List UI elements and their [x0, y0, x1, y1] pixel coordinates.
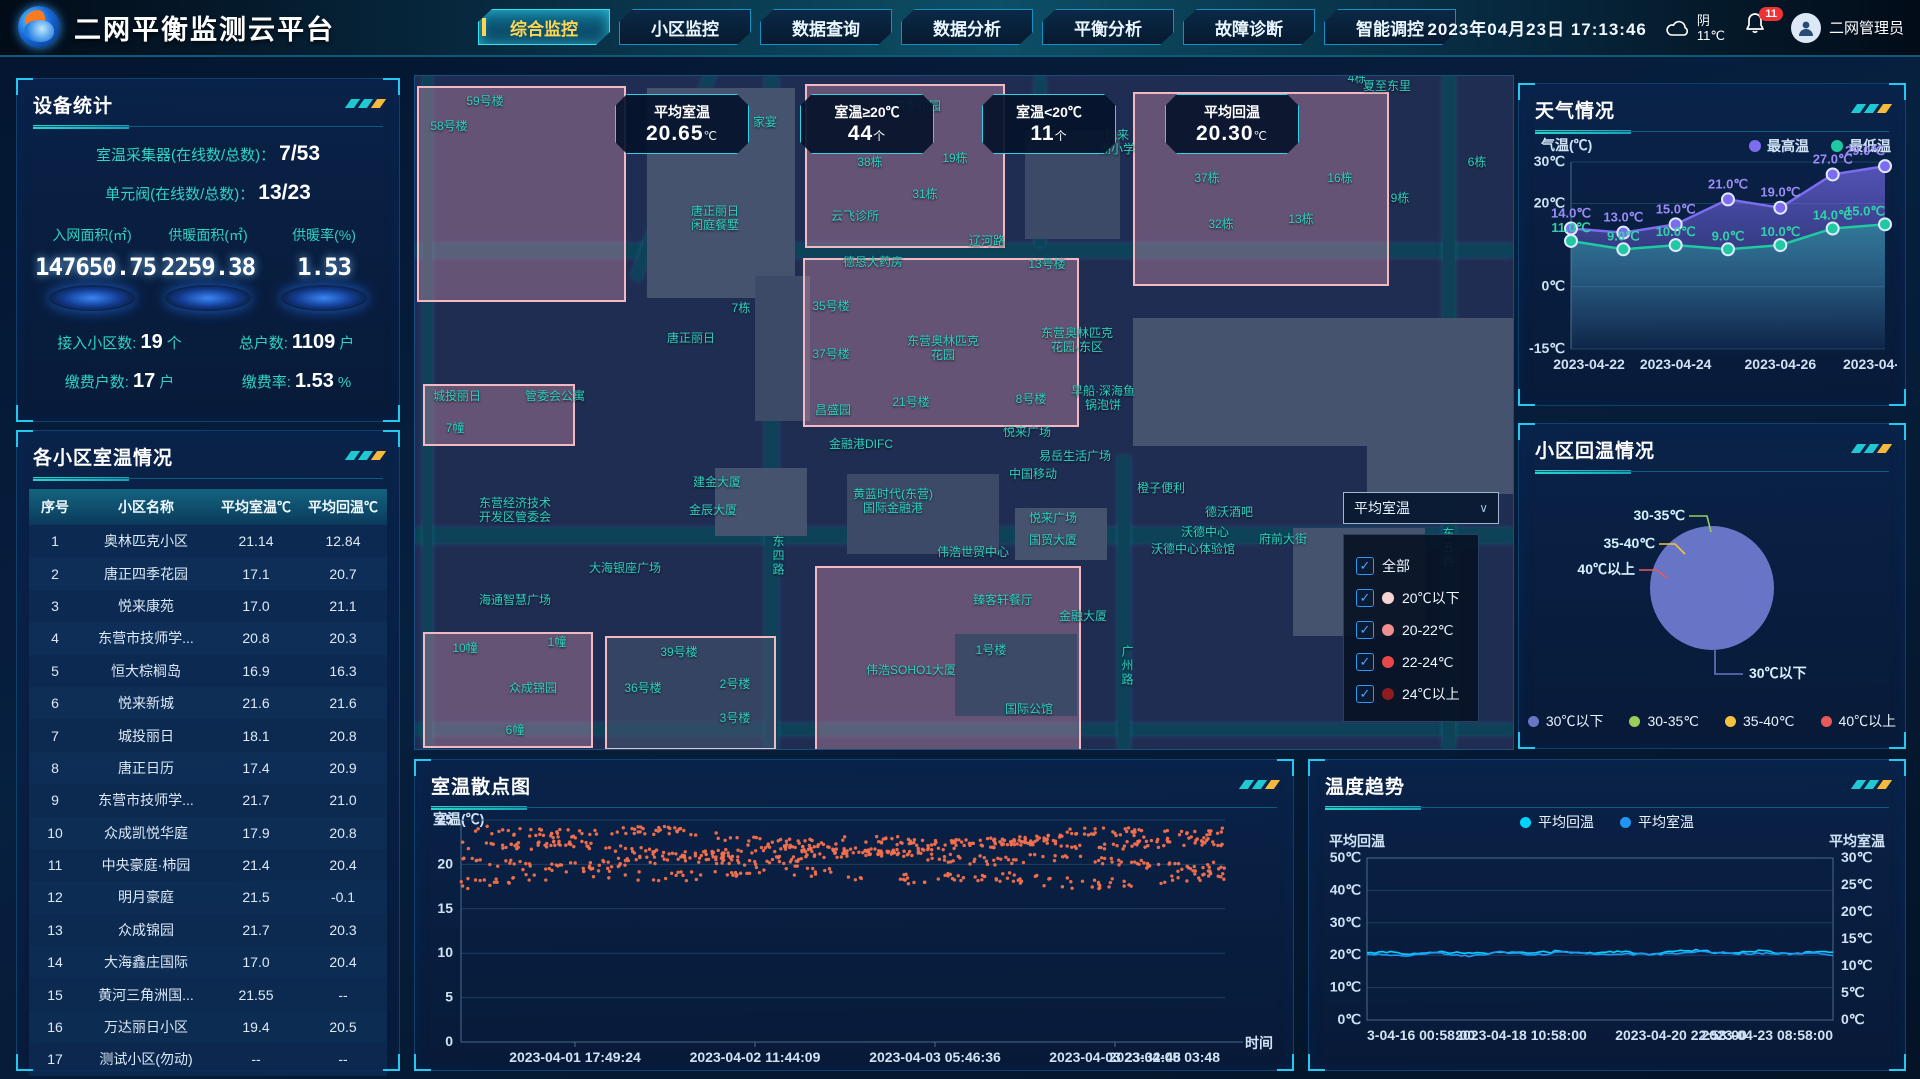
table-cell: 中央豪庭·柿园: [81, 855, 211, 875]
table-cell: --: [301, 1051, 385, 1067]
table-cell: 20.4: [301, 857, 385, 873]
map-label: 31栋: [912, 187, 937, 201]
svg-text:15: 15: [437, 900, 453, 916]
table-cell: 众成锦园: [81, 920, 211, 940]
svg-text:50℃: 50℃: [1330, 849, 1362, 865]
selected-metric: 平均室温: [1354, 498, 1410, 518]
map-label: 10幢: [452, 641, 477, 655]
nav-tab-6[interactable]: 故障诊断: [1183, 9, 1315, 45]
svg-text:30℃: 30℃: [1841, 849, 1873, 865]
panel-trend: 温度趋势 平均回温平均室温 平均回温平均室温50℃40℃30℃20℃10℃0℃3…: [1308, 759, 1906, 1071]
map-label: 昌盛园: [815, 403, 851, 417]
map-label: 伟浩世贸中心: [937, 545, 1009, 559]
trend-legend: 平均回温平均室温: [1309, 812, 1905, 832]
map-label: 8号楼: [1016, 392, 1047, 406]
legend-item: 30℃以下: [1528, 711, 1604, 731]
svg-text:0℃: 0℃: [1541, 278, 1565, 294]
table-cell: 明月豪庭: [81, 887, 211, 907]
svg-text:15.0℃: 15.0℃: [1845, 203, 1885, 218]
checkbox[interactable]: ✓: [1356, 685, 1374, 703]
table-cell: 唐正四季花园: [81, 564, 211, 584]
map-label: 国贸大厦: [1029, 533, 1077, 547]
table-cell: 东营市技师学...: [81, 628, 211, 648]
brand: 二网平衡监测云平台: [18, 6, 335, 48]
table-cell: 17.0: [211, 954, 301, 970]
panel-rewarming: 小区回温情况 30-35℃35-40℃40℃以上30℃以下 30℃以下30-35…: [1518, 423, 1906, 749]
svg-text:2023-04-: 2023-04-: [1843, 356, 1897, 372]
filter-option-label: 22-24℃: [1402, 654, 1454, 671]
table-row[interactable]: 5恒大棕榈岛16.916.3: [29, 655, 387, 687]
svg-text:平均室温: 平均室温: [1829, 833, 1885, 849]
map-label: 建金大厦: [693, 475, 741, 489]
table-row[interactable]: 1奥林匹克小区21.1412.84: [29, 525, 387, 557]
panel-title: 小区回温情况: [1535, 436, 1889, 472]
map-label: 36号楼: [624, 681, 661, 695]
nav-tab-2[interactable]: 小区监控: [619, 9, 751, 45]
table-cell: 17.4: [211, 760, 301, 776]
map-label: 海通智慧广场: [479, 593, 551, 607]
main-nav: 综合监控小区监控数据查询数据分析平衡分析故障诊断智能调控: [478, 9, 1456, 45]
map-label: 橙子便利: [1137, 481, 1185, 495]
gauge-glow-disc: [165, 285, 251, 311]
filter-option-label: 20-22℃: [1402, 622, 1454, 639]
svg-text:5: 5: [445, 989, 453, 1005]
map-label: 37号楼: [812, 347, 849, 361]
svg-text:-15℃: -15℃: [1529, 340, 1565, 356]
gauge-label: 入网面积(㎡): [35, 225, 149, 245]
temp-trend-chart: 平均回温平均室温50℃40℃30℃20℃10℃0℃30℃25℃20℃15℃10℃…: [1321, 832, 1893, 1062]
table-cell: 21.0: [301, 792, 385, 808]
map-label: 金融港DIFC: [829, 437, 893, 451]
notifications-button[interactable]: 11: [1743, 11, 1773, 45]
map-metric-select[interactable]: 平均室温∨: [1343, 492, 1499, 524]
weather-temp: 11℃: [1697, 28, 1725, 43]
map-label: 6栋: [1468, 155, 1487, 169]
map-label: 伟浩SOHO1大厦: [866, 663, 956, 677]
gauge: 入网面积(㎡)147650.75: [35, 225, 149, 311]
svg-text:0: 0: [445, 1033, 453, 1049]
badge-label: 室温≥20℃: [801, 102, 933, 122]
title-decoration: [348, 451, 383, 460]
svg-text:40℃: 40℃: [1330, 881, 1362, 897]
svg-text:35-40℃: 35-40℃: [1603, 535, 1655, 551]
filter-option[interactable]: ✓20-22℃: [1356, 617, 1478, 643]
checkbox[interactable]: ✓: [1356, 557, 1374, 575]
map-label: 39号楼: [660, 645, 697, 659]
map-label: 城投丽日: [433, 389, 481, 403]
map-label: 早船·深海鱼 锅泡饼: [1071, 384, 1135, 412]
map-label: 37栋: [1194, 171, 1219, 185]
svg-text:10.0℃: 10.0℃: [1760, 224, 1800, 239]
legend-item: 30-35℃: [1629, 711, 1699, 731]
table-row[interactable]: 9东营市技师学...21.721.0: [29, 784, 387, 816]
map-stat-badge: 室温≥20℃44个: [800, 94, 934, 154]
legend-dot: [1620, 817, 1631, 828]
map-building-block: [1367, 318, 1513, 494]
map-label: 7栋: [732, 301, 751, 315]
filter-option[interactable]: ✓24℃以上: [1356, 681, 1478, 707]
panel-scatter: 室温散点图 室温(℃)25201510502023-04-01 17:49:24…: [414, 759, 1294, 1071]
device-stat-line: 单元阀(在线数/总数)：13/23: [17, 181, 399, 205]
svg-text:19.0℃: 19.0℃: [1760, 185, 1800, 200]
table-col-header: 平均室温℃: [211, 497, 301, 517]
map-stat-badge: 平均室温20.65℃: [615, 94, 749, 154]
map-label: 7幢: [446, 421, 465, 435]
svg-text:2023-04-24: 2023-04-24: [1640, 356, 1712, 372]
svg-text:10.0℃: 10.0℃: [1656, 224, 1696, 239]
table-cell: 14: [29, 954, 81, 970]
avatar: [1791, 13, 1821, 43]
gauge-value: 1.53: [267, 253, 381, 281]
notification-badge: 11: [1759, 7, 1783, 21]
svg-text:气温(℃): 气温(℃): [1540, 137, 1592, 153]
map-label: 臻客轩餐厅: [973, 593, 1033, 607]
table-cell: 20.7: [301, 566, 385, 582]
title-decoration: [348, 99, 383, 108]
svg-text:14.0℃: 14.0℃: [1551, 205, 1591, 220]
map-label: 唐正丽日 闲庭餐墅: [691, 204, 739, 232]
gauge-label: 供暖面积(㎡): [151, 225, 265, 245]
table-row[interactable]: 16万达丽日小区19.420.5: [29, 1011, 387, 1043]
table-cell: 17.0: [211, 598, 301, 614]
svg-text:13.0℃: 13.0℃: [1603, 210, 1643, 225]
device-stat-line: 室温采集器(在线数/总数)：7/53: [17, 142, 399, 166]
table-cell: 万达丽日小区: [81, 1017, 211, 1037]
color-dot: [1382, 624, 1394, 636]
nav-tab-3[interactable]: 数据查询: [760, 9, 892, 45]
filter-option-label: 全部: [1382, 556, 1410, 576]
map-label: 德恳大药房: [843, 255, 903, 269]
kpi: 缴费率:1.53%: [208, 370, 385, 393]
table-cell: 21.1: [301, 598, 385, 614]
table-row[interactable]: 4东营市技师学...20.820.3: [29, 622, 387, 654]
svg-text:10: 10: [437, 944, 453, 960]
table-cell: 20.9: [301, 760, 385, 776]
checkbox[interactable]: ✓: [1356, 589, 1374, 607]
table-cell: 19.4: [211, 1019, 301, 1035]
table-cell: 20.3: [301, 630, 385, 646]
map-label: 夏至东里: [1363, 79, 1411, 93]
map-label: 东营奥林匹克 花园: [907, 334, 979, 362]
city-map[interactable]: 59号楼58号楼家宴四季花园夏至东里4栋38栋19栋31栋悦来 湖小学6栋16栋…: [414, 75, 1514, 750]
table-cell: 12.84: [301, 533, 385, 549]
table-body: 1奥林匹克小区21.1412.842唐正四季花园17.120.73悦来康苑17.…: [29, 525, 387, 1076]
datetime: 2023年04月23日 17:13:46: [1427, 15, 1646, 40]
svg-text:0℃: 0℃: [1841, 1011, 1865, 1027]
badge-value: 44个: [801, 122, 933, 146]
badge-label: 室温<20℃: [983, 102, 1115, 122]
svg-text:9.0℃: 9.0℃: [1712, 228, 1745, 243]
svg-text:2023-04-05 03:48: 2023-04-05 03:48: [1109, 1049, 1221, 1065]
table-row[interactable]: 15黄河三角洲国...21.55--: [29, 978, 387, 1010]
map-label: 悦来广场: [1029, 511, 1077, 525]
color-dot: [1382, 688, 1394, 700]
svg-text:30℃以下: 30℃以下: [1749, 665, 1807, 681]
color-dot: [1382, 656, 1394, 668]
svg-text:最高温: 最高温: [1767, 138, 1809, 154]
table-row[interactable]: 17测试小区(勿动)----: [29, 1043, 387, 1075]
map-label: 易岳生活广场: [1039, 449, 1111, 463]
table-cell: 16: [29, 1019, 81, 1035]
table-cell: 2: [29, 566, 81, 582]
table-cell: 3: [29, 598, 81, 614]
map-label: 辽河路: [969, 234, 1005, 248]
table-cell: 21.7: [211, 922, 301, 938]
color-dot: [1382, 592, 1394, 604]
table-cell: 13: [29, 922, 81, 938]
table-cell: 20.8: [301, 825, 385, 841]
gauge-label: 供暖率(%): [267, 225, 381, 245]
user-menu[interactable]: 二网管理员: [1791, 13, 1904, 43]
map-label: 35号楼: [812, 299, 849, 313]
map-stat-badge: 室温<20℃11个: [982, 94, 1116, 154]
table-cell: --: [301, 987, 385, 1003]
kpi: 缴费户数:17户: [31, 370, 208, 393]
svg-text:2023-04-03 05:46:36: 2023-04-03 05:46:36: [869, 1049, 1001, 1065]
table-col-header: 平均回温℃: [301, 497, 385, 517]
svg-text:10℃: 10℃: [1841, 957, 1873, 973]
svg-text:10℃: 10℃: [1330, 979, 1362, 995]
table-cell: 15: [29, 987, 81, 1003]
table-col-header: 小区名称: [81, 497, 211, 517]
panel-weather: 天气情况 气温(℃)最高温最低温30℃20℃0℃-15℃14.0℃13.0℃15…: [1518, 83, 1906, 406]
svg-text:30-35℃: 30-35℃: [1633, 507, 1685, 523]
table-cell: 20.5: [301, 1019, 385, 1035]
badge-value: 20.30℃: [1166, 122, 1298, 146]
map-label: 金辰大厦: [689, 503, 737, 517]
map-label: 沃德中心体验馆: [1151, 542, 1235, 556]
gauge-glow-disc: [49, 285, 135, 311]
map-label: 13号楼: [1028, 257, 1065, 271]
svg-text:2023-04-23 08:58:00: 2023-04-23 08:58:00: [1701, 1027, 1833, 1043]
map-label: 家宴: [753, 115, 777, 129]
map-label: 59号楼: [466, 94, 503, 108]
table-cell: 7: [29, 728, 81, 744]
table-cell: 东营市技师学...: [81, 790, 211, 810]
svg-text:25℃: 25℃: [1841, 876, 1873, 892]
legend-dot: [1821, 716, 1832, 727]
gauge-value: 147650.75: [35, 253, 149, 281]
gauge-value: 2259.38: [151, 253, 265, 281]
nav-tab-1[interactable]: 综合监控: [478, 9, 610, 45]
filter-option-label: 24℃以上: [1402, 684, 1460, 704]
table-cell: 20.8: [211, 630, 301, 646]
kpi-grid: 接入小区数:19个总户数:1109户缴费户数:17户缴费率:1.53%: [17, 331, 399, 393]
svg-text:5℃: 5℃: [1841, 984, 1865, 1000]
table-cell: 21.55: [211, 987, 301, 1003]
app-logo-icon: [18, 6, 60, 48]
svg-text:时间: 时间: [1245, 1035, 1273, 1051]
dashboard: 二网平衡监测云平台 综合监控小区监控数据查询数据分析平衡分析故障诊断智能调控 2…: [0, 0, 1920, 1079]
table-cell: 17.9: [211, 825, 301, 841]
table-cell: 城投丽日: [81, 726, 211, 746]
svg-text:20℃: 20℃: [1841, 903, 1873, 919]
legend-dot: [1520, 817, 1531, 828]
map-label: 国际公馆: [1005, 702, 1053, 716]
cloud-icon: [1665, 18, 1691, 38]
table-cell: 21.7: [211, 792, 301, 808]
map-label: 19栋: [942, 151, 967, 165]
badge-value: 11个: [983, 122, 1115, 146]
user-icon: [1796, 18, 1816, 38]
table-cell: 悦来康苑: [81, 596, 211, 616]
chevron-down-icon: ∨: [1479, 501, 1488, 515]
map-label: 沃德中心: [1181, 525, 1229, 539]
filter-option[interactable]: ✓20℃以下: [1356, 585, 1478, 611]
nav-tab-5[interactable]: 平衡分析: [1042, 9, 1174, 45]
weather-text: 阴: [1697, 13, 1725, 28]
table-cell: 16.3: [301, 663, 385, 679]
legend-item: 35-40℃: [1725, 711, 1795, 731]
header-right: 2023年04月23日 17:13:46 阴11℃ 11 二: [1427, 0, 1904, 55]
map-label: 悦来广场: [1003, 425, 1051, 439]
map-temp-filter: ✓全部✓20℃以下✓20-22℃✓22-24℃✓24℃以上: [1343, 534, 1479, 722]
table-header: 序号小区名称平均室温℃平均回温℃: [29, 489, 387, 525]
map-label: 3号楼: [720, 711, 751, 725]
table-cell: 悦来新城: [81, 693, 211, 713]
rewarming-pie-chart: 30-35℃35-40℃40℃以上30℃以下: [1527, 476, 1897, 702]
map-building-block: [755, 276, 810, 421]
table-cell: 18.1: [211, 728, 301, 744]
table-cell: 16.9: [211, 663, 301, 679]
panel-title: 设备统计: [33, 91, 383, 127]
map-label: 1号楼: [976, 643, 1007, 657]
table-row[interactable]: 2唐正四季花园17.120.7: [29, 557, 387, 589]
kpi: 接入小区数:19个: [31, 331, 208, 354]
indoor-temp-scatter-chart: 室温(℃)25201510502023-04-01 17:49:242023-0…: [425, 810, 1279, 1066]
table-cell: 大海鑫庄国际: [81, 952, 211, 972]
map-label: 2号楼: [720, 677, 751, 691]
table-cell: 5: [29, 663, 81, 679]
map-label: 东四路: [771, 535, 785, 577]
svg-text:2023-04-26: 2023-04-26: [1745, 356, 1817, 372]
table-row[interactable]: 6悦来新城21.621.6: [29, 687, 387, 719]
legend-dot: [1629, 716, 1640, 727]
table-cell: 21.6: [301, 695, 385, 711]
checkbox[interactable]: ✓: [1356, 621, 1374, 639]
svg-text:21.0℃: 21.0℃: [1708, 176, 1748, 191]
map-label: 16栋: [1327, 171, 1352, 185]
gauge: 供暖面积(㎡)2259.38: [151, 225, 265, 311]
map-label: 管委会公寓: [525, 389, 585, 403]
filter-option[interactable]: ✓全部: [1356, 553, 1478, 579]
legend-item: 平均室温: [1620, 812, 1694, 832]
table-cell: --: [211, 1051, 301, 1067]
table-row[interactable]: 3悦来康苑17.021.1: [29, 590, 387, 622]
pie-legend: 30℃以下30-35℃35-40℃40℃以上: [1519, 711, 1905, 731]
table-row[interactable]: 8唐正日历17.420.9: [29, 752, 387, 784]
title-decoration: [1854, 444, 1889, 453]
panel-title: 温度趋势: [1325, 772, 1889, 808]
table-cell: 21.5: [211, 889, 301, 905]
username: 二网管理员: [1829, 17, 1904, 38]
map-label: 4栋: [1348, 75, 1367, 85]
map-label: 唐正丽日: [667, 331, 715, 345]
header: 二网平衡监测云平台 综合监控小区监控数据查询数据分析平衡分析故障诊断智能调控 2…: [0, 0, 1920, 57]
panel-device-stats: 设备统计 室温采集器(在线数/总数)：7/53单元阀(在线数/总数)：13/23…: [16, 78, 400, 422]
svg-text:29.0℃: 29.0℃: [1845, 143, 1885, 158]
table-cell: 恒大棕榈岛: [81, 661, 211, 681]
table-cell: 奥林匹克小区: [81, 531, 211, 551]
map-label: 德沃酒吧: [1205, 505, 1253, 519]
table-cell: 测试小区(勿动): [81, 1049, 211, 1069]
map-label: 东营经济技术 开发区管委会: [479, 496, 551, 524]
map-label: 6幢: [506, 723, 525, 737]
svg-text:15℃: 15℃: [1841, 930, 1873, 946]
table-cell: 21.14: [211, 533, 301, 549]
map-label: 38栋: [857, 155, 882, 169]
svg-text:0℃: 0℃: [1337, 1011, 1361, 1027]
table-row[interactable]: 14大海鑫庄国际17.020.4: [29, 946, 387, 978]
panel-title: 天气情况: [1535, 96, 1889, 132]
map-label: 1幢: [548, 635, 567, 649]
svg-text:20℃: 20℃: [1330, 946, 1362, 962]
badge-label: 平均回温: [1166, 102, 1298, 122]
svg-text:2023-04-18 10:58:00: 2023-04-18 10:58:00: [1455, 1027, 1587, 1043]
table-cell: 8: [29, 760, 81, 776]
table-cell: 众成凯悦华庭: [81, 823, 211, 843]
filter-option[interactable]: ✓22-24℃: [1356, 649, 1478, 675]
map-label: 32栋: [1208, 217, 1233, 231]
table-cell: 9: [29, 792, 81, 808]
table-row[interactable]: 11中央豪庭·柿园21.420.4: [29, 849, 387, 881]
map-label: 金融大厦: [1059, 609, 1107, 623]
table-cell: 黄河三角洲国...: [81, 985, 211, 1005]
map-label: 58号楼: [430, 119, 467, 133]
map-label: 府前大街: [1259, 532, 1307, 546]
table-cell: 20.3: [301, 922, 385, 938]
table-cell: 12: [29, 889, 81, 905]
table-row[interactable]: 12明月豪庭21.5-0.1: [29, 881, 387, 913]
title-decoration: [1854, 780, 1889, 789]
map-label: 21号楼: [892, 395, 929, 409]
svg-text:30℃: 30℃: [1330, 914, 1362, 930]
map-label: 中国移动: [1009, 467, 1057, 481]
badge-value: 20.65℃: [616, 122, 748, 146]
map-label: 大海银座广场: [589, 561, 661, 575]
table-cell: -0.1: [301, 889, 385, 905]
legend-item: 平均回温: [1520, 812, 1594, 832]
map-building-block: [1133, 318, 1385, 446]
svg-text:11.0℃: 11.0℃: [1551, 220, 1590, 235]
app-title: 二网平衡监测云平台: [74, 8, 335, 47]
nav-tab-4[interactable]: 数据分析: [901, 9, 1033, 45]
table-cell: 1: [29, 533, 81, 549]
svg-text:20: 20: [437, 855, 453, 871]
weather-now: 阴11℃: [1665, 13, 1725, 43]
map-label: 云飞诊所: [831, 209, 879, 223]
checkbox[interactable]: ✓: [1356, 653, 1374, 671]
table-cell: 20.4: [301, 954, 385, 970]
table-cell: 唐正日历: [81, 758, 211, 778]
table-cell: 4: [29, 630, 81, 646]
panel-title: 各小区室温情况: [33, 443, 383, 479]
panel-title: 室温散点图: [431, 772, 1277, 808]
filter-option-label: 20℃以下: [1402, 588, 1460, 608]
gauge: 供暖率(%)1.53: [267, 225, 381, 311]
map-label: 东营奥林匹克 花园-东区: [1041, 326, 1113, 354]
map-label: 9栋: [1391, 191, 1410, 205]
table-row[interactable]: 13众成锦园21.720.3: [29, 914, 387, 946]
svg-text:40℃以上: 40℃以上: [1577, 561, 1635, 577]
table-row[interactable]: 10众成凯悦华庭17.920.8: [29, 817, 387, 849]
svg-text:2023-04-01 17:49:24: 2023-04-01 17:49:24: [509, 1049, 641, 1065]
svg-text:2023-04-22: 2023-04-22: [1553, 356, 1625, 372]
table-row[interactable]: 7城投丽日18.120.8: [29, 719, 387, 751]
svg-text:平均回温: 平均回温: [1329, 833, 1385, 849]
svg-text:2023-04-02 11:44:09: 2023-04-02 11:44:09: [690, 1049, 821, 1065]
table-cell: 21.6: [211, 695, 301, 711]
